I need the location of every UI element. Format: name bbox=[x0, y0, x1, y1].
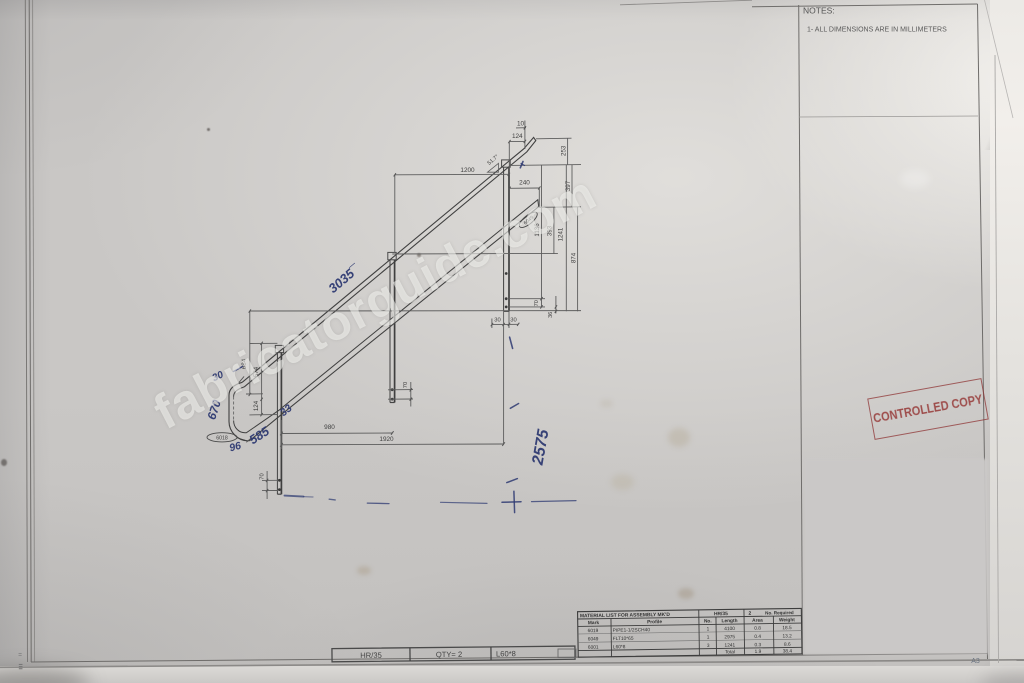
svg-text:30: 30 bbox=[211, 369, 226, 384]
svg-text:3035¯: 3035¯ bbox=[325, 261, 363, 296]
svg-text:33: 33 bbox=[278, 402, 295, 419]
svg-text:96: 96 bbox=[228, 440, 243, 455]
svg-text:670: 670 bbox=[204, 398, 224, 422]
svg-text:2575: 2575 bbox=[529, 427, 552, 467]
svg-text:585: 585 bbox=[247, 424, 273, 448]
